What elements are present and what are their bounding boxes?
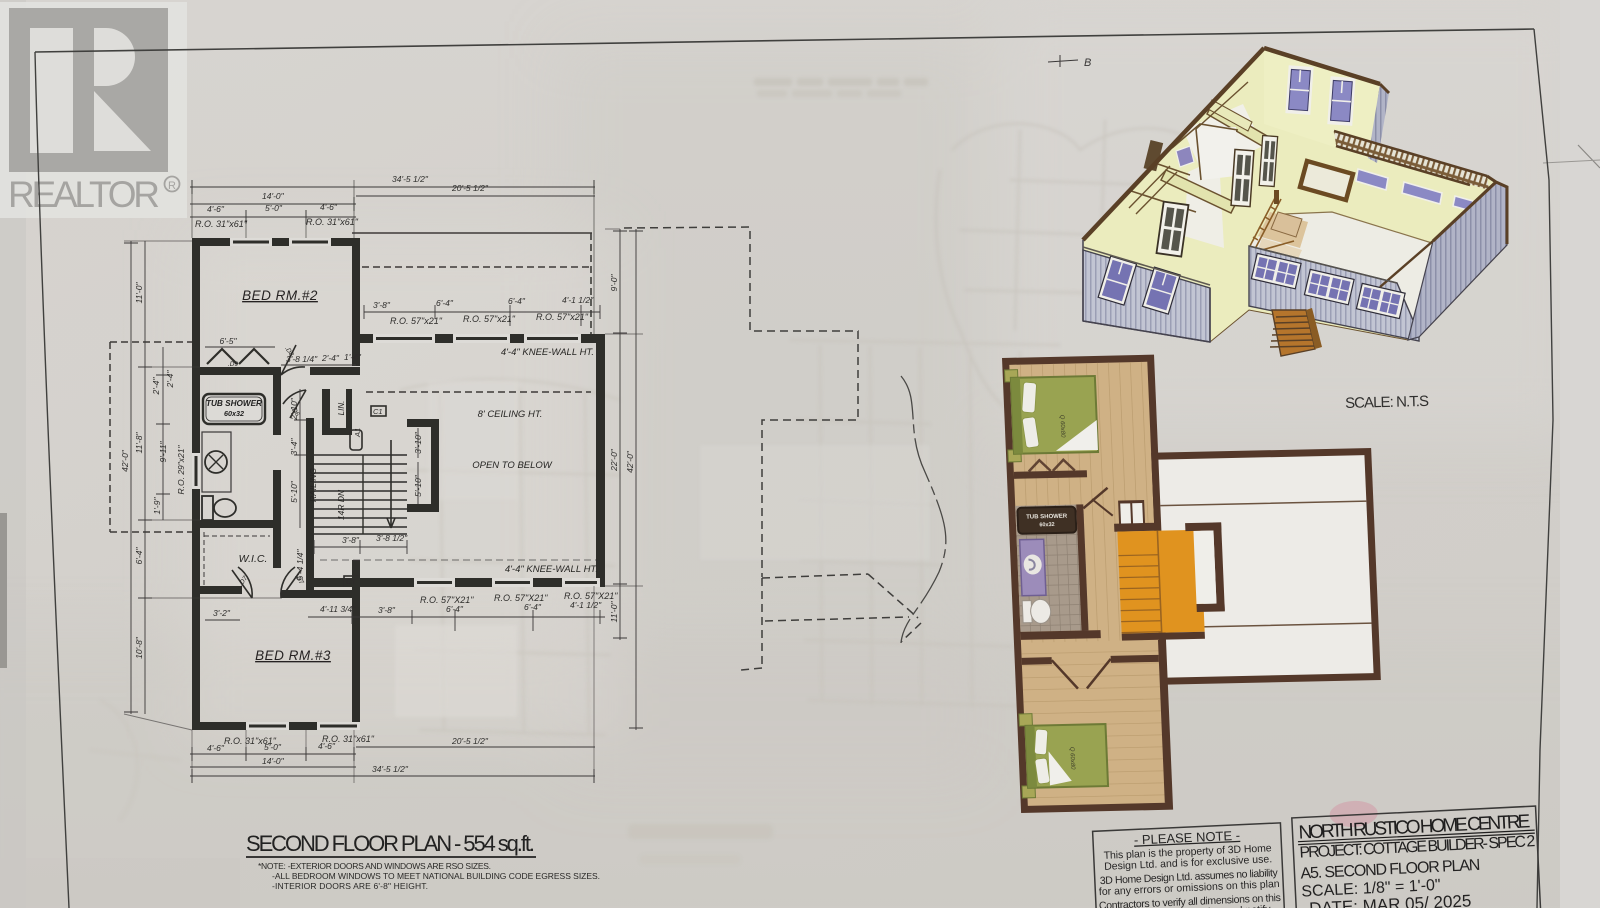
svg-text:R.O. 57"X21": R.O. 57"X21" xyxy=(494,593,548,603)
svg-text:6'-5": 6'-5" xyxy=(220,336,238,346)
svg-text:R.O. 57"x21": R.O. 57"x21" xyxy=(536,312,589,322)
svg-text:9'-11": 9'-11" xyxy=(158,441,168,463)
svg-text:4'-6": 4'-6" xyxy=(318,741,336,751)
svg-text:-INTERIOR DOORS ARE 6'-8" HEIG: -INTERIOR DOORS ARE 6'-8" HEIGHT. xyxy=(272,881,428,891)
svg-text:4'-4" KNEE-WALL HT.: 4'-4" KNEE-WALL HT. xyxy=(501,347,594,358)
svg-text:6'-4": 6'-4" xyxy=(446,604,464,614)
svg-text:4'-1 1/2": 4'-1 1/2" xyxy=(562,295,594,305)
svg-text:8' CEILING HT.: 8' CEILING HT. xyxy=(478,409,543,420)
svg-text:10'-8": 10'-8" xyxy=(134,636,144,659)
svg-text:4'-6": 4'-6" xyxy=(320,202,338,212)
svg-text:R.O. 57"x21": R.O. 57"x21" xyxy=(463,314,516,324)
svg-text:Q 60x80: Q 60x80 xyxy=(1058,415,1065,438)
svg-text:6'-4": 6'-4" xyxy=(134,547,144,565)
svg-text:2'-4": 2'-4" xyxy=(321,353,340,363)
svg-text:3'-8": 3'-8" xyxy=(373,300,391,310)
svg-text:6'-4": 6'-4" xyxy=(524,602,542,612)
svg-text:SCALE: N.T.S: SCALE: N.T.S xyxy=(1345,393,1429,412)
svg-text:3'-8": 3'-8" xyxy=(378,605,396,615)
svg-text:.D9: .D9 xyxy=(228,361,239,368)
svg-text:60x32: 60x32 xyxy=(1039,522,1055,528)
svg-text:C1: C1 xyxy=(346,577,356,586)
svg-text:3'-8": 3'-8" xyxy=(342,535,360,545)
svg-text:1'-4": 1'-4" xyxy=(344,352,362,362)
svg-text:4'-1 1/2": 4'-1 1/2" xyxy=(570,600,602,610)
svg-text:22'-0": 22'-0" xyxy=(609,448,619,472)
svg-text:REALTOR: REALTOR xyxy=(8,174,160,215)
svg-text:R.O. 29"x21": R.O. 29"x21" xyxy=(176,445,186,495)
svg-text:R.O. 57"X21": R.O. 57"X21" xyxy=(564,591,618,601)
svg-text:14R DN: 14R DN xyxy=(336,489,346,520)
svg-text:R: R xyxy=(168,180,176,192)
svg-text:34'-5 1/2": 34'-5 1/2" xyxy=(392,174,429,184)
svg-text:LIN.: LIN. xyxy=(337,401,346,416)
svg-text:R.O. 57"X21": R.O. 57"X21" xyxy=(420,595,474,605)
svg-text:5'-4 1/4": 5'-4 1/4" xyxy=(295,548,305,580)
svg-text:20'-5 1/2": 20'-5 1/2" xyxy=(451,183,489,193)
svg-text:R.O. 31"x61": R.O. 31"x61" xyxy=(195,219,248,229)
svg-text:14'-0": 14'-0" xyxy=(262,191,285,201)
svg-text:14'-0": 14'-0" xyxy=(262,756,285,766)
svg-text:4'-11 3/4": 4'-11 3/4" xyxy=(320,604,356,614)
svg-text:3'-8 1/2": 3'-8 1/2" xyxy=(376,533,408,543)
svg-text:A1: A1 xyxy=(353,428,362,438)
svg-text:11'-0": 11'-0" xyxy=(134,282,144,304)
svg-text:5'-10": 5'-10" xyxy=(289,480,299,503)
svg-text:RAILING: RAILING xyxy=(308,468,318,502)
svg-text:3'-2": 3'-2" xyxy=(213,608,231,618)
svg-text:5'-0": 5'-0" xyxy=(264,742,282,752)
svg-text:-ALL BEDROOM WINDOWS TO MEET N: -ALL BEDROOM WINDOWS TO MEET NATIONAL BU… xyxy=(272,871,600,881)
svg-text:42'-0": 42'-0" xyxy=(625,450,635,473)
svg-text:3'-10": 3'-10" xyxy=(413,431,423,454)
svg-text:60x32: 60x32 xyxy=(224,409,244,418)
svg-text:11'-0": 11'-0" xyxy=(609,601,619,623)
svg-text:34'-5 1/2": 34'-5 1/2" xyxy=(372,764,409,774)
svg-text:42'-0": 42'-0" xyxy=(120,449,130,472)
svg-text:*NOTE: -EXTERIOR DOORS AND WIN: *NOTE: -EXTERIOR DOORS AND WINDOWS ARE R… xyxy=(258,861,491,871)
svg-text:TUB SHOWER: TUB SHOWER xyxy=(206,399,262,408)
svg-text:SECOND FLOOR PLAN - 554 sq.ft.: SECOND FLOOR PLAN - 554 sq.ft. xyxy=(246,831,535,856)
svg-text:TUB SHOWER: TUB SHOWER xyxy=(1026,514,1068,521)
svg-text:2'-10": 2'-10" xyxy=(289,397,299,421)
svg-text:B: B xyxy=(1084,57,1091,69)
svg-text:5'-0": 5'-0" xyxy=(265,203,283,213)
svg-text:3'-4": 3'-4" xyxy=(289,438,299,456)
svg-text:W.I.C.: W.I.C. xyxy=(239,553,268,565)
svg-text:4'-4" KNEE-WALL HT.: 4'-4" KNEE-WALL HT. xyxy=(505,564,598,575)
svg-text:6'-4": 6'-4" xyxy=(508,296,526,306)
svg-text:11'-8": 11'-8" xyxy=(134,432,144,454)
svg-text:Q 60x80: Q 60x80 xyxy=(1068,747,1075,770)
svg-text:OPEN TO BELOW: OPEN TO BELOW xyxy=(472,460,553,471)
svg-text:2'-4": 2'-4" xyxy=(151,377,161,396)
svg-text:BED RM.#3: BED RM.#3 xyxy=(255,648,331,663)
svg-text:20'-5 1/2": 20'-5 1/2" xyxy=(451,736,489,746)
svg-text:1'-9": 1'-9" xyxy=(152,497,162,515)
svg-text:R.O. 31"x61": R.O. 31"x61" xyxy=(306,217,359,227)
svg-text:3'-8 1/4": 3'-8 1/4" xyxy=(286,354,318,364)
svg-text:R.O. 57"x21": R.O. 57"x21" xyxy=(390,316,443,326)
svg-text:4'-6": 4'-6" xyxy=(207,204,225,214)
svg-text:9'-0": 9'-0" xyxy=(609,274,619,292)
svg-text:6'-4": 6'-4" xyxy=(436,298,454,308)
svg-text:BED RM.#2: BED RM.#2 xyxy=(242,288,318,303)
svg-text:5'-10": 5'-10" xyxy=(413,474,423,497)
svg-text:4'-6": 4'-6" xyxy=(207,743,225,753)
svg-text:C1: C1 xyxy=(373,407,383,416)
svg-text:2'-4": 2'-4" xyxy=(165,370,175,389)
